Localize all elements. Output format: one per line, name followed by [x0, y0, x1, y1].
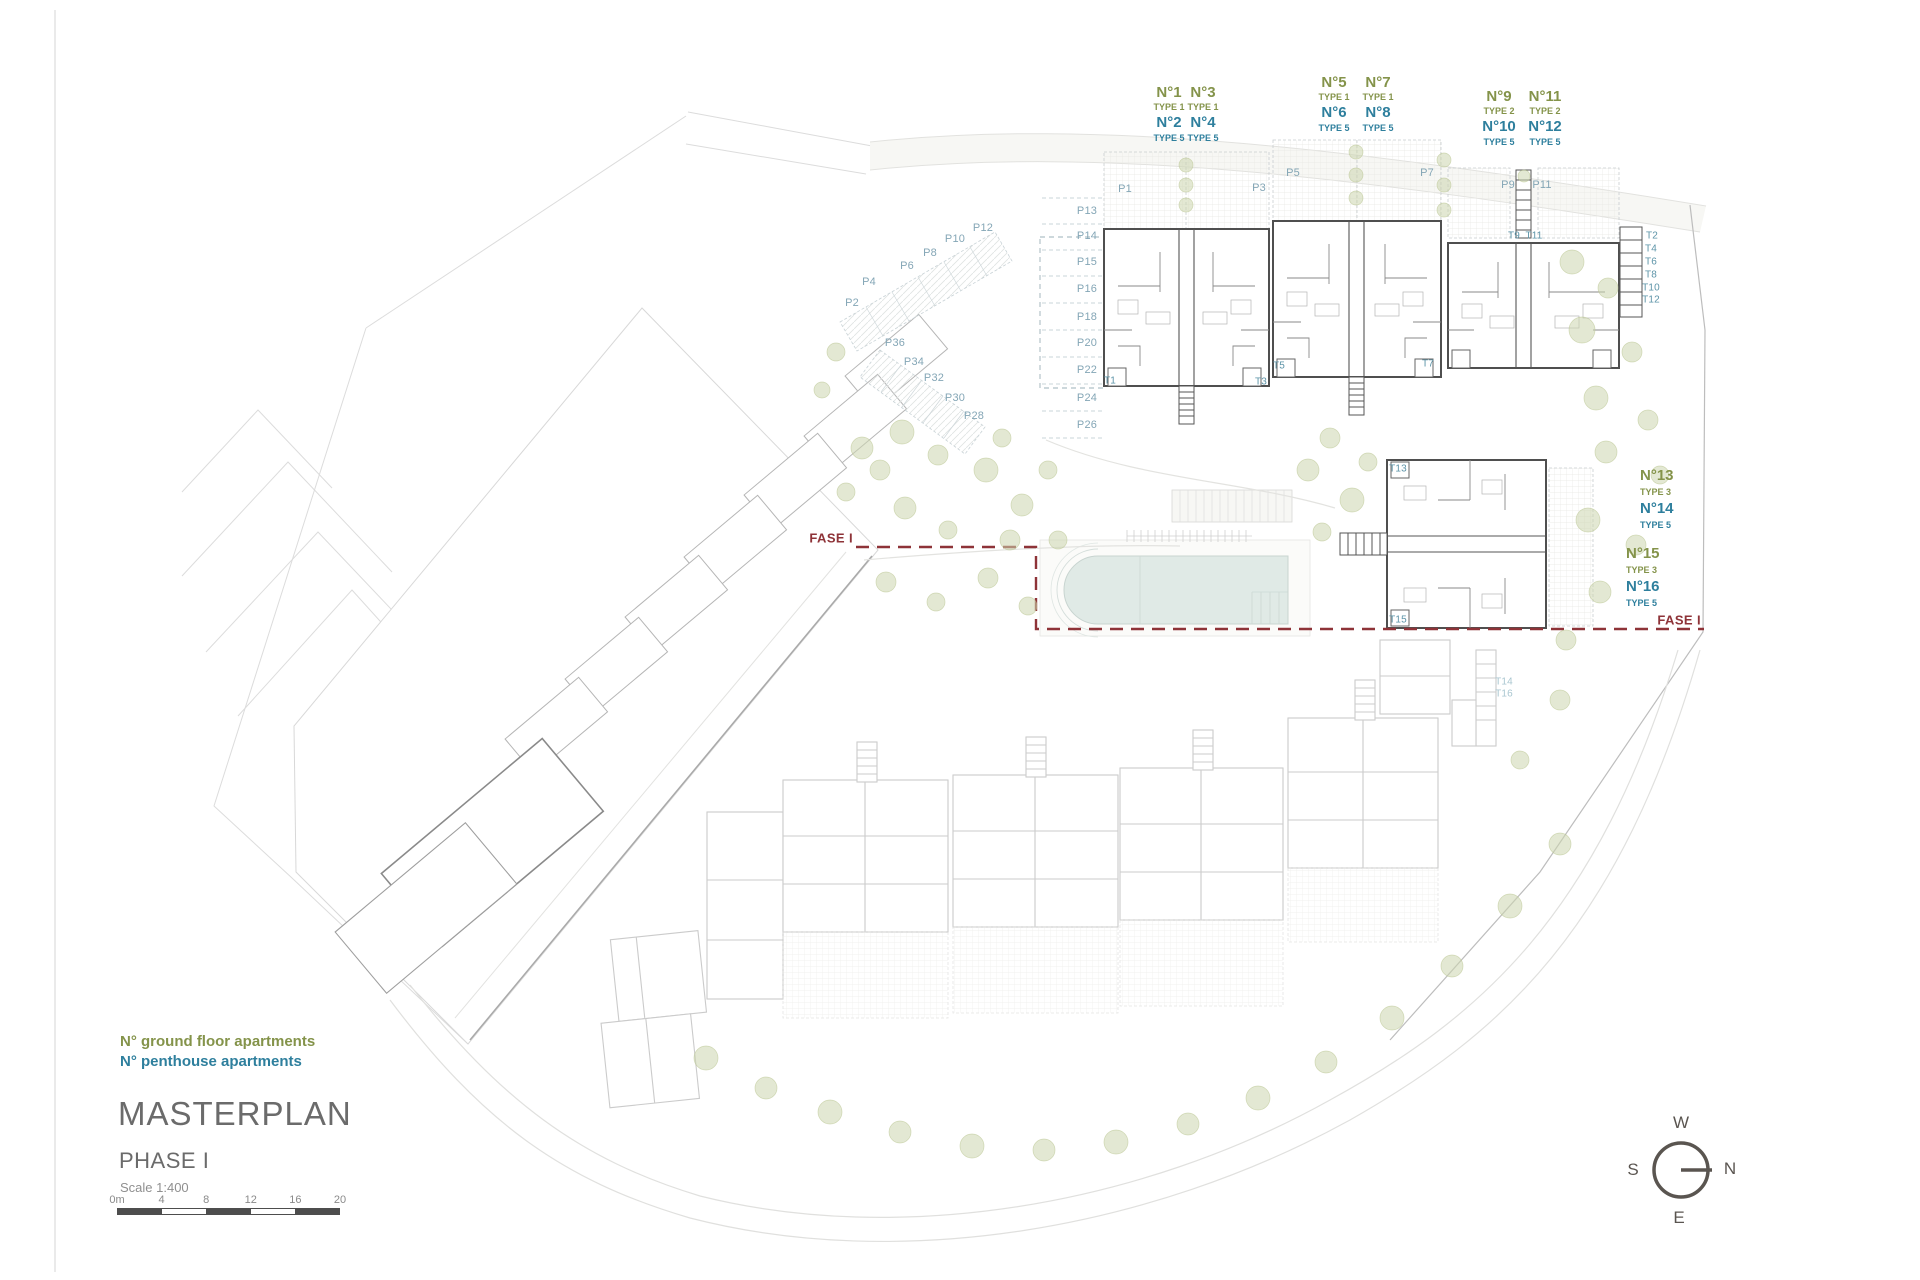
tree-icon — [694, 1046, 718, 1070]
stair-label-t7: T7 — [1422, 359, 1434, 370]
tree-icon — [1638, 410, 1658, 430]
scale-tick-4: 4 — [159, 1194, 165, 1206]
tree-icon — [1518, 170, 1530, 182]
scale-tick-20: 20 — [334, 1194, 346, 1206]
parking-label-p6: P6 — [900, 260, 914, 272]
tree-icon — [814, 382, 830, 398]
units-1-4-col2: N°3TYPE 1N°4TYPE 5 — [1187, 84, 1218, 145]
tree-icon — [1380, 1006, 1404, 1030]
stair-label-t8: T8 — [1645, 270, 1657, 281]
tree-icon — [1498, 894, 1522, 918]
stair-label-t12: T12 — [1642, 295, 1660, 306]
scale-bar — [117, 1208, 340, 1215]
parking-label-p16: P16 — [1077, 283, 1097, 295]
tree-icon — [818, 1100, 842, 1124]
parking-label-p8: P8 — [923, 247, 937, 259]
phase-label-right: FASE I — [1657, 613, 1701, 628]
tree-icon — [894, 497, 916, 519]
parking-label-p4: P4 — [862, 276, 876, 288]
garden-label-p9: P9 — [1501, 179, 1515, 191]
parking-label-p15: P15 — [1077, 256, 1097, 268]
stair-label-t11: T11 — [1525, 231, 1542, 242]
parking-label-p13: P13 — [1077, 205, 1097, 217]
stair-label-t9: T9 — [1508, 231, 1520, 242]
tree-icon — [870, 460, 890, 480]
compass-north: N — [1724, 1159, 1736, 1179]
page-title: MASTERPLAN — [118, 1095, 352, 1133]
tree-icon — [1549, 833, 1571, 855]
legend: N° ground floor apartments N° penthouse … — [120, 1032, 315, 1072]
units-5-8-col1: N°5TYPE 1N°6TYPE 5 — [1318, 74, 1349, 135]
parking-label-p20: P20 — [1077, 337, 1097, 349]
stair-label-t5: T5 — [1273, 361, 1285, 372]
tree-icon — [851, 437, 873, 459]
compass-rose — [1654, 1143, 1712, 1197]
units-9-12-col2: N°11TYPE 2N°12TYPE 5 — [1528, 88, 1562, 149]
stair-label-t16: T16 — [1495, 689, 1513, 700]
tree-icon — [890, 420, 914, 444]
tree-icon — [1179, 178, 1193, 192]
tree-icon — [1177, 1113, 1199, 1135]
pool — [1064, 556, 1288, 624]
parking-label-p26: P26 — [1077, 419, 1097, 431]
tree-icon — [755, 1077, 777, 1099]
parking-label-p22: P22 — [1077, 364, 1097, 376]
tree-icon — [1246, 1086, 1270, 1110]
masterplan-drawing — [0, 0, 1920, 1280]
garden-label-p7: P7 — [1420, 167, 1434, 179]
scale-tick-12: 12 — [245, 1194, 257, 1206]
stair-label-t4: T4 — [1645, 244, 1657, 255]
garden-label-p11: P11 — [1532, 179, 1551, 191]
tree-icon — [928, 445, 948, 465]
tree-icon — [939, 521, 957, 539]
phase-title: PHASE I — [119, 1148, 209, 1174]
tree-icon — [1556, 630, 1576, 650]
stair-label-t3: T3 — [1255, 377, 1267, 388]
tree-icon — [837, 483, 855, 501]
tree-icon — [1019, 597, 1037, 615]
parking-label-p12: P12 — [973, 222, 993, 234]
tree-icon — [927, 593, 945, 611]
garden-label-p5: P5 — [1286, 167, 1300, 179]
tree-icon — [1359, 453, 1377, 471]
tree-icon — [1589, 581, 1611, 603]
tree-icon — [1598, 278, 1618, 298]
tree-icon — [1349, 168, 1363, 182]
tree-icon — [1033, 1139, 1055, 1161]
tree-icon — [1313, 523, 1331, 541]
tree-icon — [1011, 494, 1033, 516]
tree-icon — [1104, 1130, 1128, 1154]
parking-label-p18: P18 — [1077, 311, 1097, 323]
compass-east: E — [1673, 1208, 1684, 1228]
tree-icon — [1297, 459, 1319, 481]
tree-icon — [1349, 145, 1363, 159]
units-1-4-col1: N°1TYPE 1N°2TYPE 5 — [1153, 84, 1184, 145]
stair-tower-east — [1620, 227, 1642, 317]
tree-icon — [1595, 441, 1617, 463]
stair-label-t1: T1 — [1104, 376, 1116, 387]
parking-label-p34: P34 — [904, 356, 924, 368]
compass-south: S — [1627, 1160, 1638, 1180]
tree-icon — [889, 1121, 911, 1143]
tree-icon — [1179, 158, 1193, 172]
stair-label-t10: T10 — [1642, 283, 1660, 294]
stair-label-t15: T15 — [1389, 615, 1407, 626]
tree-icon — [993, 429, 1011, 447]
tree-icon — [1622, 342, 1642, 362]
tree-icon — [1437, 178, 1451, 192]
pool-area — [1040, 490, 1310, 637]
scale-tick-8: 8 — [203, 1194, 209, 1206]
legend-penthouse: N° penthouse apartments — [120, 1052, 315, 1072]
stair-label-t2: T2 — [1646, 231, 1658, 242]
parking-label-p28: P28 — [964, 410, 984, 422]
tree-icon — [1349, 191, 1363, 205]
tree-icon — [1315, 1051, 1337, 1073]
tree-icon — [1584, 386, 1608, 410]
stair-label-t6: T6 — [1645, 257, 1657, 268]
units-5-8-col2: N°7TYPE 1N°8TYPE 5 — [1362, 74, 1393, 135]
tree-icon — [1000, 530, 1020, 550]
parking-label-p10: P10 — [945, 233, 965, 245]
tree-icon — [960, 1134, 984, 1158]
tree-icon — [1569, 317, 1595, 343]
tree-icon — [978, 568, 998, 588]
parking-label-p36: P36 — [885, 337, 905, 349]
tree-icon — [1576, 508, 1600, 532]
tree-icon — [1340, 488, 1364, 512]
stair-label-t13: T13 — [1389, 464, 1407, 475]
tree-icon — [1437, 203, 1451, 217]
tree-icon — [1179, 198, 1193, 212]
masterplan-sheet: P1P3P5P7P9P11P2P4P6P8P10P12P28P30P32P34P… — [0, 0, 1920, 1280]
compass-west: W — [1673, 1113, 1689, 1133]
scale-tick-16: 16 — [289, 1194, 301, 1206]
phase-label-left: FASE I — [809, 531, 853, 546]
parking-label-p14: P14 — [1077, 230, 1097, 242]
scale-text: Scale 1:400 — [120, 1180, 189, 1195]
units-13-14: N°13TYPE 3N°14TYPE 5 — [1640, 466, 1674, 532]
tree-icon — [876, 572, 896, 592]
tree-icon — [1049, 531, 1067, 549]
units-15-16: N°15TYPE 3N°16TYPE 5 — [1626, 544, 1660, 610]
parking-label-p30: P30 — [945, 392, 965, 404]
parking-label-p2: P2 — [845, 297, 859, 309]
tree-icon — [1441, 955, 1463, 977]
tree-icon — [1560, 250, 1584, 274]
tree-icon — [827, 343, 845, 361]
legend-ground-floor: N° ground floor apartments — [120, 1032, 315, 1052]
building-block-4 — [1340, 460, 1593, 628]
garden-label-p3: P3 — [1252, 182, 1266, 194]
scale-tick-0m: 0m — [109, 1194, 124, 1206]
tree-icon — [1437, 153, 1451, 167]
parking-label-p24: P24 — [1077, 392, 1097, 404]
stair-label-t14: T14 — [1495, 677, 1513, 688]
tree-icon — [1550, 690, 1570, 710]
tree-icon — [1039, 461, 1057, 479]
garden-label-p1: P1 — [1118, 183, 1132, 195]
tree-icon — [1511, 751, 1529, 769]
units-9-12-col1: N°9TYPE 2N°10TYPE 5 — [1482, 88, 1516, 149]
tree-icon — [974, 458, 998, 482]
parking-label-p32: P32 — [924, 372, 944, 384]
tree-icon — [1320, 428, 1340, 448]
